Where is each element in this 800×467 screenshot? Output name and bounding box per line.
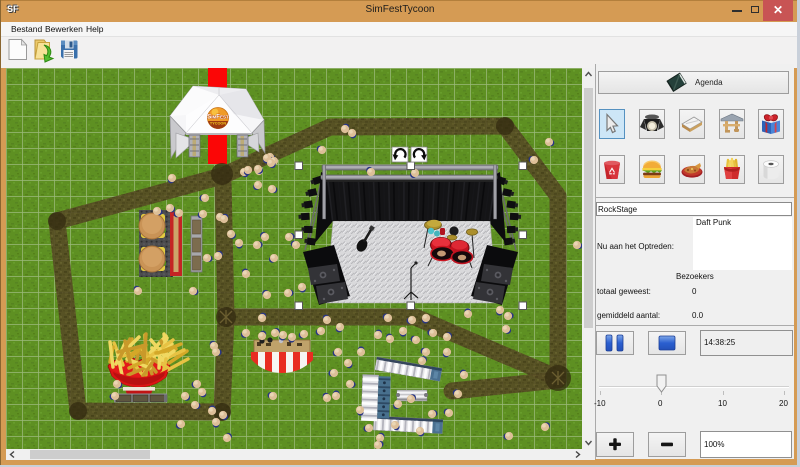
svg-text:TYCOON: TYCOON [210, 122, 227, 126]
